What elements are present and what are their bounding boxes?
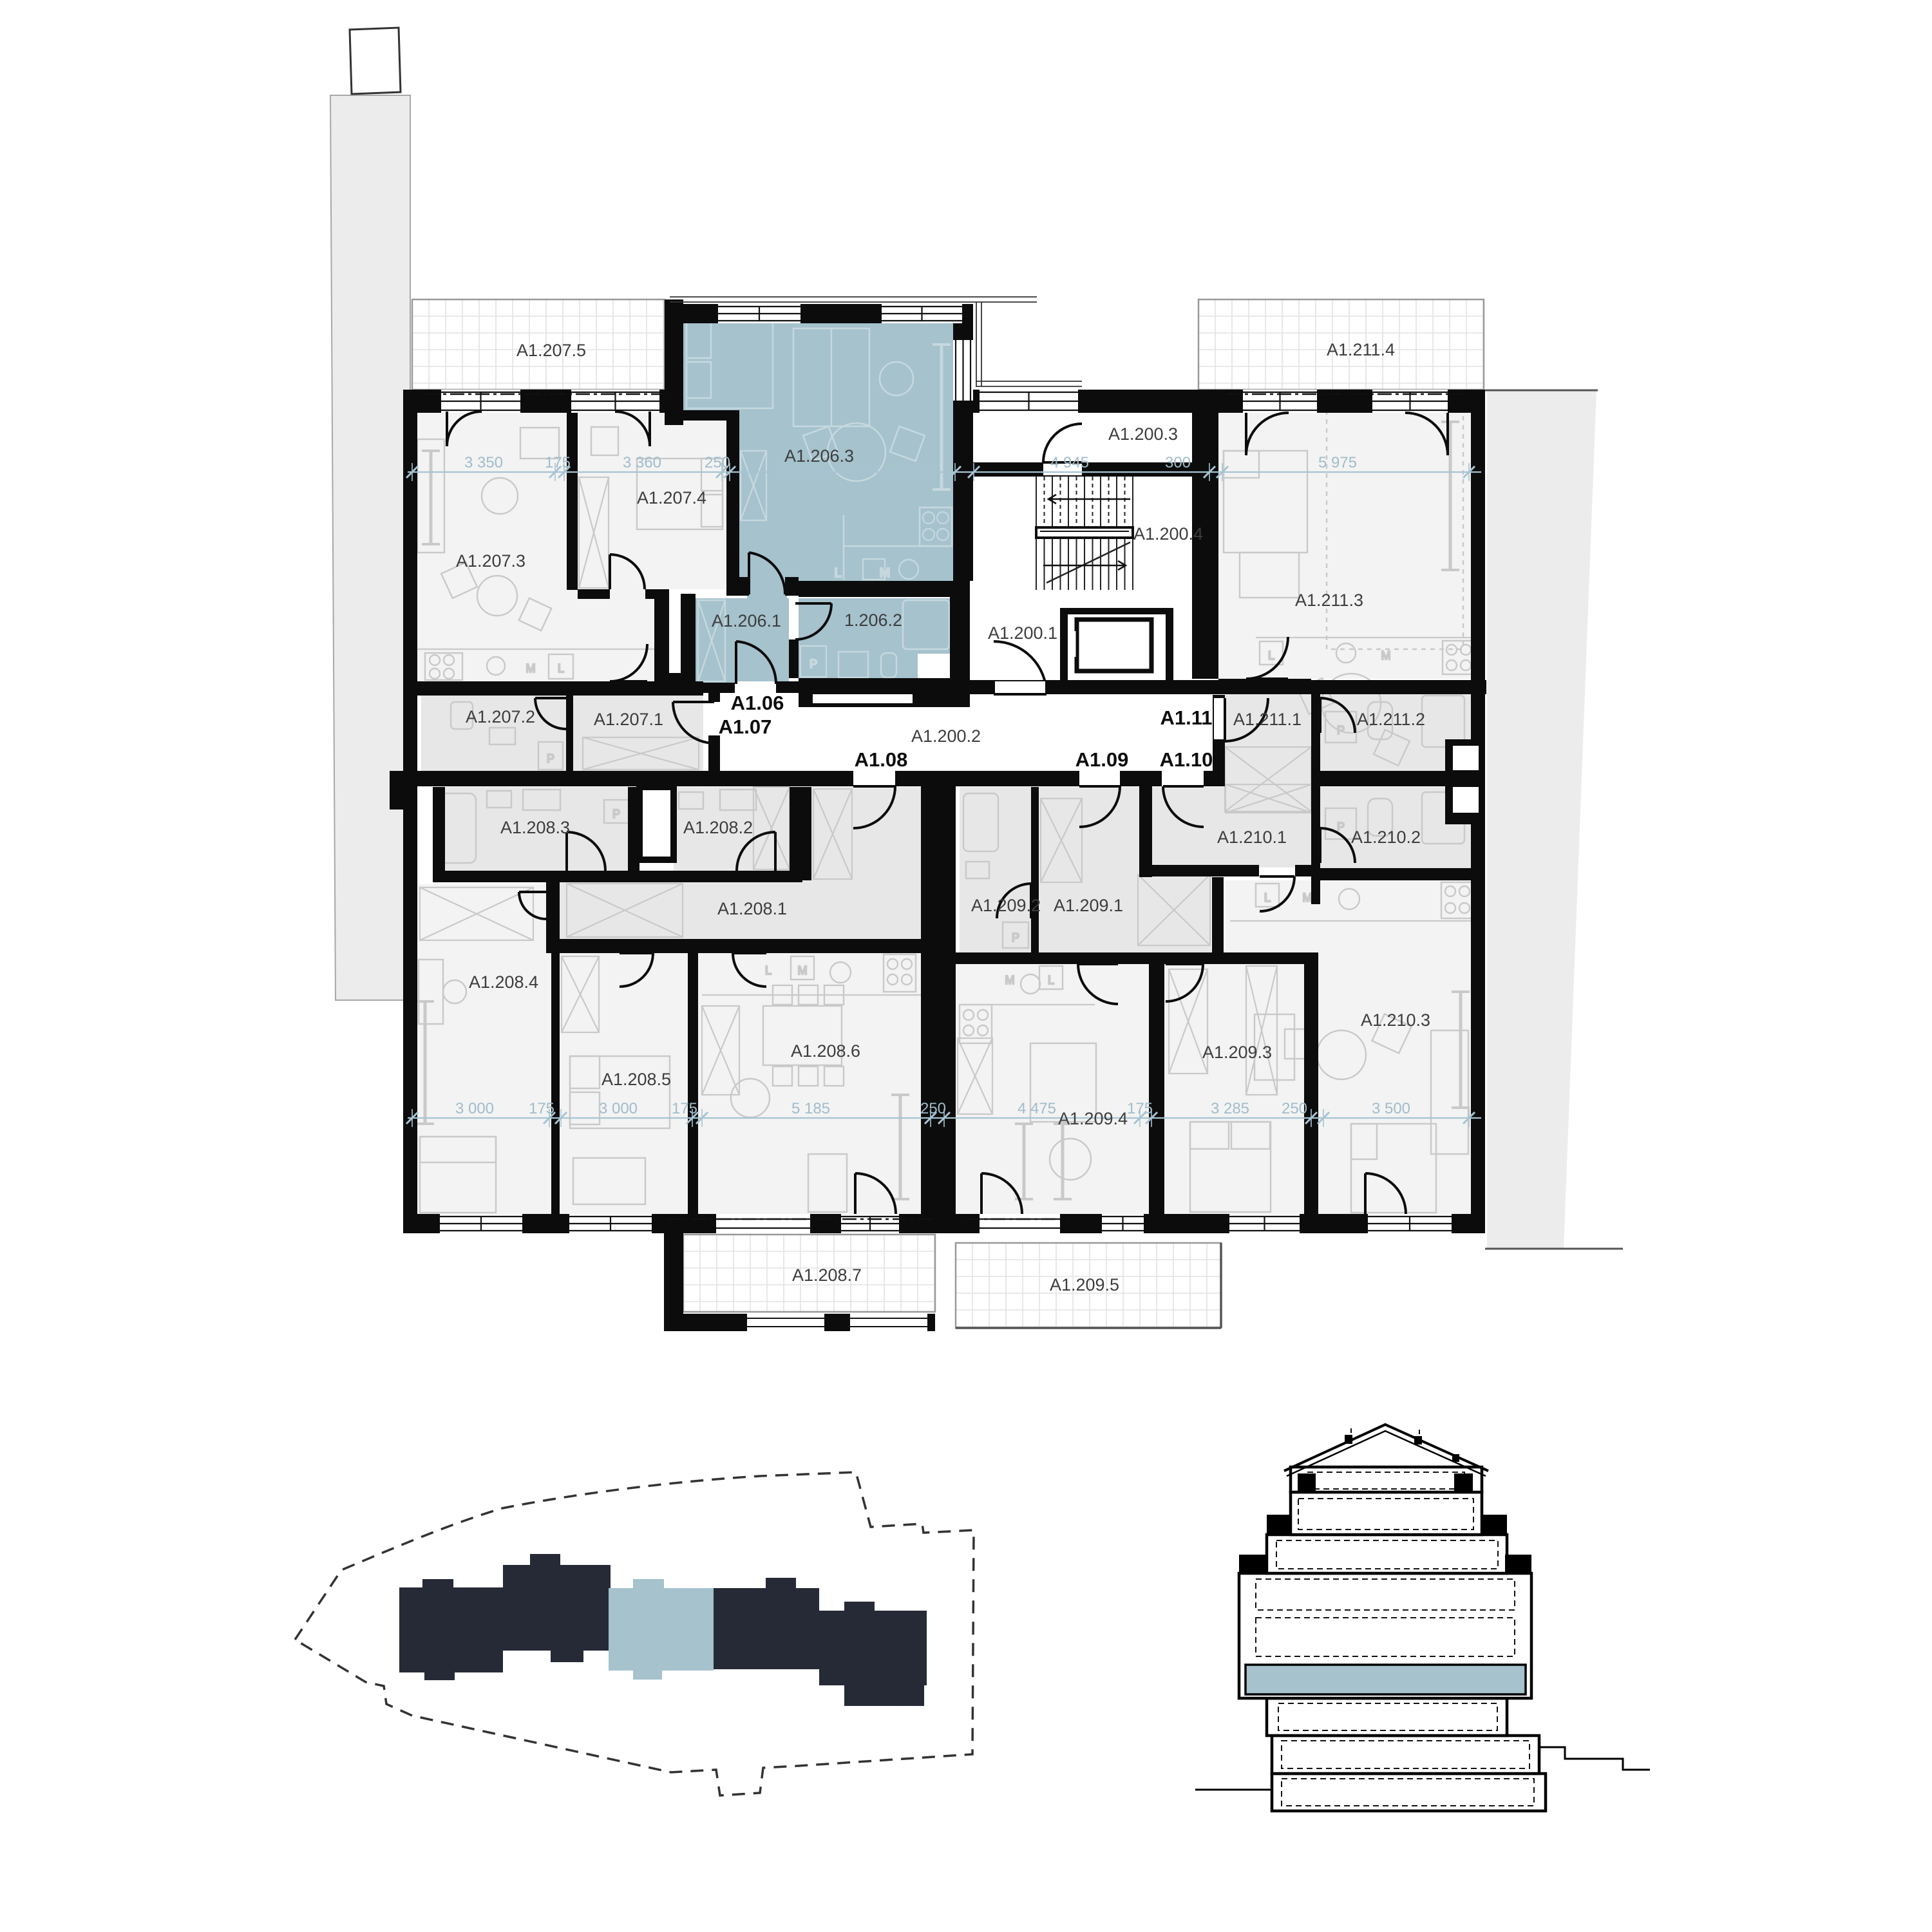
svg-text:250: 250 (705, 454, 730, 471)
svg-text:A1.207.2: A1.207.2 (466, 707, 535, 726)
svg-text:3 000: 3 000 (599, 1100, 638, 1117)
svg-text:A1.11: A1.11 (1160, 706, 1212, 729)
svg-text:A1.208.1: A1.208.1 (717, 899, 787, 918)
svg-text:3 350: 3 350 (464, 454, 503, 471)
svg-text:M: M (1005, 974, 1015, 987)
svg-text:A1.200.1: A1.200.1 (988, 623, 1057, 643)
svg-text:M: M (1381, 649, 1391, 662)
svg-text:L: L (1264, 891, 1271, 904)
svg-text:L: L (558, 662, 564, 675)
svg-text:A1.209.1: A1.209.1 (1054, 896, 1123, 915)
svg-text:4 945: 4 945 (1050, 454, 1089, 471)
svg-text:5 975: 5 975 (1318, 454, 1357, 471)
svg-text:175: 175 (529, 1100, 554, 1117)
svg-text:A1.209.5: A1.209.5 (1050, 1275, 1119, 1294)
svg-text:175: 175 (1127, 1100, 1153, 1117)
svg-text:L: L (834, 566, 841, 580)
svg-text:A1.207.3: A1.207.3 (456, 551, 526, 571)
svg-text:P: P (1337, 724, 1345, 737)
svg-text:A1.207.5: A1.207.5 (516, 341, 586, 360)
svg-text:A1.10: A1.10 (1160, 748, 1213, 771)
svg-text:3 000: 3 000 (455, 1100, 494, 1117)
svg-text:A1.211.2: A1.211.2 (1357, 710, 1425, 729)
svg-text:P: P (1337, 820, 1345, 833)
svg-text:M: M (1303, 891, 1312, 904)
svg-text:A1.09: A1.09 (1075, 748, 1129, 771)
svg-text:P: P (612, 808, 620, 820)
svg-text:175: 175 (672, 1100, 697, 1117)
svg-text:L: L (1268, 649, 1274, 662)
svg-text:A1.208.7: A1.208.7 (792, 1265, 862, 1285)
svg-text:A1.200.3: A1.200.3 (1108, 424, 1178, 444)
svg-text:5 185: 5 185 (791, 1100, 830, 1117)
svg-text:A1.211.1: A1.211.1 (1233, 710, 1302, 729)
svg-text:250: 250 (920, 1100, 946, 1117)
svg-text:A1.08: A1.08 (855, 748, 908, 771)
svg-text:A1.209.4: A1.209.4 (1058, 1109, 1128, 1128)
svg-text:A1.211.3: A1.211.3 (1295, 591, 1363, 610)
svg-text:M: M (526, 662, 536, 675)
svg-text:4 475: 4 475 (1018, 1100, 1056, 1117)
svg-text:A1.210.2: A1.210.2 (1351, 828, 1421, 847)
svg-text:250: 250 (1282, 1100, 1307, 1117)
svg-text:A1.208.4: A1.208.4 (469, 972, 538, 992)
svg-text:A1.207.4: A1.207.4 (637, 488, 706, 507)
svg-text:175: 175 (545, 454, 571, 471)
svg-text:L: L (765, 964, 772, 977)
svg-text:A1.209.2: A1.209.2 (971, 896, 1041, 915)
svg-text:A1.200.2: A1.200.2 (911, 726, 981, 746)
svg-text:A1.206.3: A1.206.3 (784, 446, 854, 466)
svg-text:P: P (1012, 931, 1019, 944)
svg-text:M: M (880, 566, 891, 580)
svg-text:A1.206.1: A1.206.1 (712, 611, 781, 630)
svg-text:A1.208.3: A1.208.3 (500, 818, 570, 837)
svg-text:A1.210.3: A1.210.3 (1361, 1010, 1430, 1030)
svg-text:A1.208.6: A1.208.6 (791, 1041, 860, 1061)
svg-text:A1.210.1: A1.210.1 (1217, 828, 1287, 847)
svg-text:A1.208.2: A1.208.2 (683, 818, 753, 837)
svg-text:M: M (798, 964, 808, 977)
svg-text:A1.211.4: A1.211.4 (1327, 340, 1395, 359)
svg-text:A1.06: A1.06 (731, 692, 784, 714)
svg-text:P: P (810, 658, 817, 670)
svg-text:P: P (547, 752, 554, 765)
svg-text:L: L (1048, 974, 1054, 987)
svg-text:3 360: 3 360 (623, 454, 661, 471)
svg-text:3 285: 3 285 (1211, 1100, 1249, 1117)
svg-text:A1.207.1: A1.207.1 (594, 710, 663, 729)
svg-text:A1.200.4: A1.200.4 (1133, 524, 1203, 544)
svg-text:A1.208.5: A1.208.5 (601, 1070, 671, 1089)
svg-text:A1.07: A1.07 (719, 715, 772, 738)
svg-text:300: 300 (1165, 454, 1191, 471)
svg-text:3 500: 3 500 (1372, 1100, 1410, 1117)
svg-text:A1.209.3: A1.209.3 (1202, 1043, 1272, 1062)
svg-text:1.206.2: 1.206.2 (844, 611, 902, 630)
